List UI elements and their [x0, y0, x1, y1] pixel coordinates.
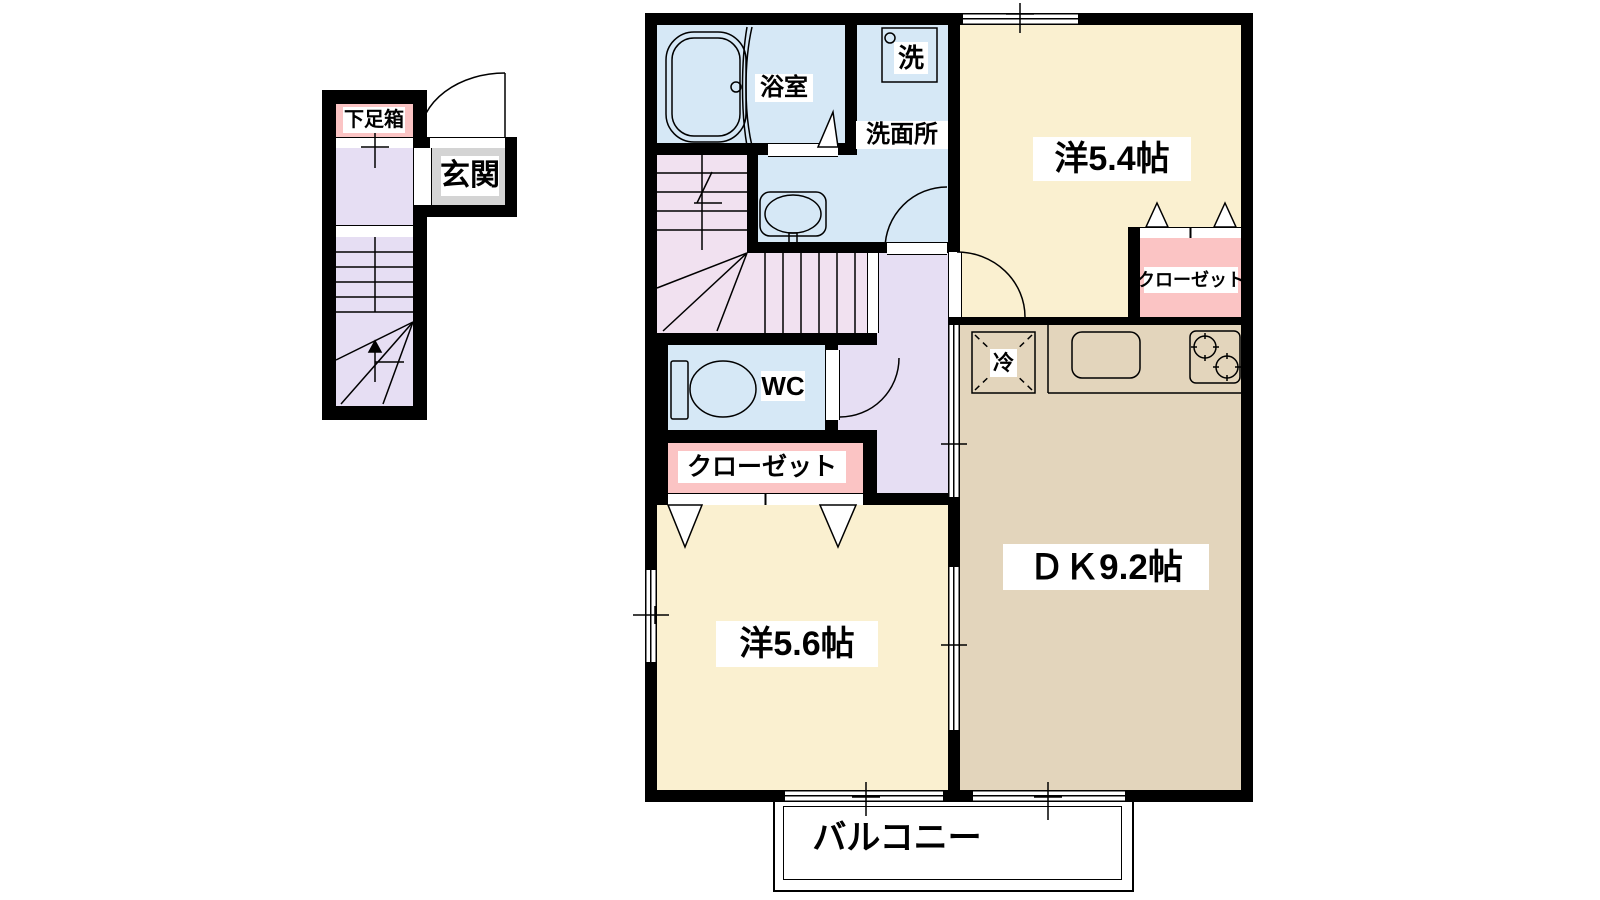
washing-machine-label: 洗 — [894, 42, 928, 74]
entry-landing — [336, 148, 413, 225]
closet-54-label: クローゼット — [1144, 267, 1238, 293]
balcony-label: バルコニー — [818, 816, 976, 860]
floor-plan: 下足箱 玄関 浴室 洗 洗面所 洋5.4帖 クローゼット 冷 WC クローゼット… — [0, 0, 1600, 900]
hallway-area — [877, 253, 948, 493]
entry-staircase — [336, 237, 413, 406]
washroom-area-lower — [758, 155, 857, 242]
window-room-56-dk — [948, 567, 960, 730]
wc-door-opening — [825, 350, 840, 420]
stair-hall-opening — [867, 253, 879, 333]
main-staircase-lower — [657, 253, 867, 333]
bathroom-door-opening — [768, 143, 838, 157]
western-room-54-label: 洋5.4帖 — [1033, 137, 1191, 181]
sliding-door-hall-dk — [948, 325, 960, 497]
entrance-label: 玄関 — [441, 156, 499, 196]
main-staircase-upper — [657, 155, 747, 253]
fridge-label: 冷 — [990, 349, 1017, 377]
washroom-label: 洗面所 — [856, 121, 948, 149]
window-dk-balcony — [973, 790, 1125, 802]
dining-kitchen-label: ＤＫ9.2帖 — [1003, 544, 1209, 590]
shoe-box-label: 下足箱 — [343, 107, 405, 133]
entrance-step-edge — [413, 148, 432, 205]
room-54-door-leaf — [948, 252, 962, 317]
window-room-54-north — [963, 13, 1078, 25]
bathroom-label: 浴室 — [755, 74, 813, 102]
washroom-door-opening — [887, 242, 947, 255]
window-room-56-west — [645, 570, 657, 662]
western-room-56-label: 洋5.6帖 — [716, 621, 878, 667]
hallway-area-west — [838, 345, 877, 430]
entrance-door-icon — [420, 73, 505, 137]
window-room-56-balcony — [785, 790, 943, 802]
wc-label: WC — [761, 371, 805, 401]
bathroom-area — [657, 25, 845, 143]
closet-56-label: クローゼット — [678, 451, 846, 483]
